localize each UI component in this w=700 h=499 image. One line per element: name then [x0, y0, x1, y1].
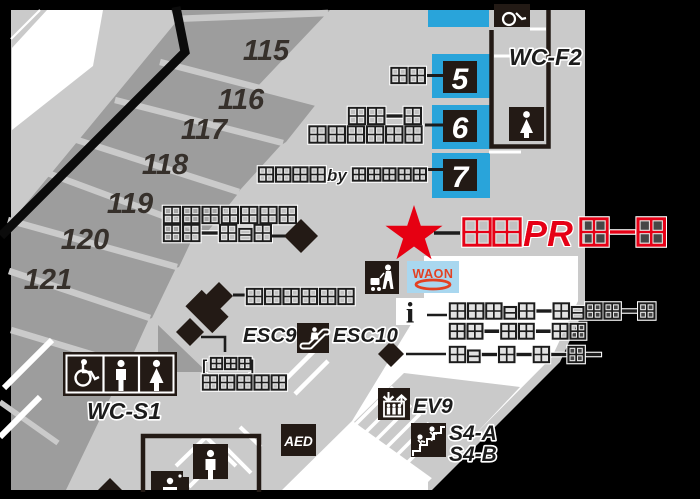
- svg-text:AED: AED: [283, 434, 313, 449]
- svg-text:7: 7: [452, 161, 470, 194]
- svg-text:by: by: [327, 166, 348, 185]
- svg-text:S4-B: S4-B: [449, 443, 497, 466]
- svg-text:6: 6: [452, 112, 469, 145]
- svg-text:118: 118: [142, 149, 189, 181]
- svg-text:ESC10: ESC10: [333, 324, 399, 347]
- svg-text:]: ]: [249, 358, 254, 375]
- svg-text:EV9: EV9: [413, 395, 453, 418]
- svg-text:115: 115: [243, 35, 290, 67]
- svg-text:5: 5: [452, 63, 470, 96]
- svg-text:119: 119: [107, 188, 153, 220]
- svg-text:120: 120: [61, 224, 109, 256]
- svg-text:WC-S1: WC-S1: [87, 398, 161, 424]
- svg-text:ESC9: ESC9: [243, 324, 297, 347]
- svg-text:[: [: [202, 358, 208, 375]
- svg-text:i: i: [406, 297, 414, 330]
- svg-text:S4-A: S4-A: [449, 422, 497, 445]
- svg-text:117: 117: [181, 114, 229, 146]
- svg-text:121: 121: [24, 264, 72, 296]
- svg-text:116: 116: [218, 84, 265, 116]
- svg-text:PR: PR: [523, 213, 573, 254]
- svg-text:WC-F2: WC-F2: [509, 44, 582, 70]
